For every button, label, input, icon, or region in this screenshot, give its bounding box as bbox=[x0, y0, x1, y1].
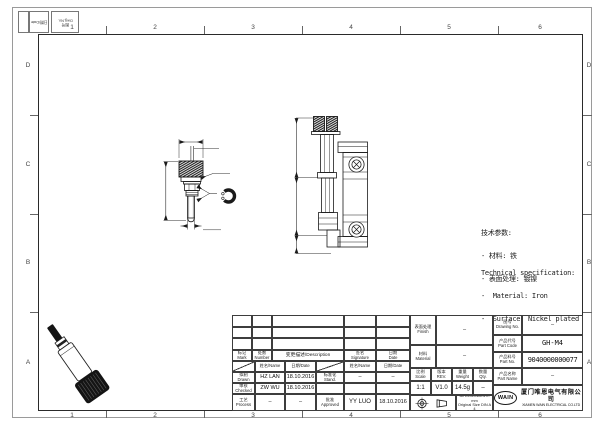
part-code-label: 产品代号 Part Code bbox=[493, 335, 522, 352]
revision-cell bbox=[252, 338, 272, 350]
part-code-value: GH-M4 bbox=[522, 335, 583, 352]
dim-30: 30 bbox=[287, 144, 295, 152]
company-cell: WAIN 厦门唯恩电气有限公司 XIAMEN WAIN ELECTRICAL C… bbox=[493, 385, 583, 411]
revision-cell bbox=[232, 327, 252, 338]
dim-41-7: 41.7 bbox=[155, 183, 163, 200]
revision-cell bbox=[376, 315, 410, 327]
dim-m4: M4 bbox=[205, 222, 214, 231]
part-no-value: 9040000000077 bbox=[522, 352, 583, 368]
finish-label: 表面处理 Finish bbox=[410, 315, 436, 345]
qty-label: 数量 Qty. bbox=[473, 368, 493, 381]
process-date: – bbox=[285, 394, 316, 411]
material-label: 材料 Material bbox=[410, 345, 436, 368]
approved-date: 18.10.2016 bbox=[376, 394, 410, 411]
drawing-no-label: 图号 Drawing No. bbox=[493, 315, 522, 335]
drawn-name: HZ LAN bbox=[255, 372, 285, 383]
company-name-en: XIAMEN WAIN ELECTRICAL CO.LTD bbox=[522, 403, 580, 407]
diagonal-cell bbox=[316, 361, 344, 372]
scale-label: 比例 Scale bbox=[410, 368, 431, 381]
empty-cell bbox=[344, 383, 376, 394]
subheader-name: 姓名/Name bbox=[255, 361, 285, 372]
drawing-sheet: 日期/Date 图号 Dwg.No. 1 2 3 4 5 6 1 2 3 4 5… bbox=[0, 0, 600, 424]
stand-date: – bbox=[376, 372, 410, 383]
material-value: – bbox=[436, 345, 493, 368]
revision-cell bbox=[232, 315, 252, 327]
weight-label: 重量 Weight bbox=[452, 368, 473, 381]
qty-value: – bbox=[473, 381, 493, 395]
company-name-cn: 厦门唯恩电气有限公司 bbox=[520, 389, 582, 403]
finish-value: – bbox=[436, 315, 493, 345]
stand-label: 标准化 Stand. bbox=[316, 372, 344, 383]
part-name-label: 产品名称 Part Name bbox=[493, 368, 522, 385]
approved-label: 批准 Approved bbox=[316, 394, 344, 411]
revision-header-signature: 签名 Signature bbox=[344, 350, 376, 361]
drawn-label: 拟制 Drawn bbox=[232, 372, 255, 383]
revision-cell bbox=[252, 315, 272, 327]
first-angle-projection-icon bbox=[413, 397, 453, 410]
rev-label: 版本 REV. bbox=[431, 368, 452, 381]
revision-cell bbox=[344, 327, 376, 338]
drawn-date: 18.10.2016 bbox=[285, 372, 316, 383]
checked-label: 审核 Checked bbox=[232, 383, 255, 394]
weight-value: 14.5g bbox=[452, 381, 473, 395]
dim-dia12: ø12 bbox=[184, 130, 197, 139]
projection-symbol-cell bbox=[410, 395, 456, 411]
dimensions-note: All Dimensions in mm Original Size DIN A… bbox=[456, 395, 493, 411]
empty-cell bbox=[376, 383, 410, 394]
part-name-value: – bbox=[522, 368, 583, 385]
revision-header-number: 处数 Number bbox=[252, 350, 272, 361]
side-view: 30 19.5 6.8 bbox=[287, 117, 368, 254]
drawing-no-value: – bbox=[522, 315, 583, 335]
checked-date: 18.10.2016 bbox=[285, 383, 316, 394]
scale-value: 1:1 bbox=[410, 381, 431, 395]
dim-6-8: 6.8 bbox=[287, 239, 295, 252]
revision-cell bbox=[376, 338, 410, 350]
revision-header-description: 变更描述/Description bbox=[272, 350, 344, 361]
revision-cell bbox=[232, 338, 252, 350]
diagonal-cell bbox=[232, 361, 255, 372]
c-ring-detail bbox=[223, 190, 235, 202]
approved-name: YY LUO bbox=[344, 394, 376, 411]
empty-cell bbox=[316, 383, 344, 394]
revision-cell bbox=[272, 315, 344, 327]
revision-cell bbox=[272, 327, 344, 338]
detail-view bbox=[198, 187, 235, 203]
dim-19-5: 19.5 bbox=[287, 198, 295, 215]
subheader-date2: 日期/Date bbox=[376, 361, 410, 372]
checked-name: ZW WU bbox=[255, 383, 285, 394]
subheader-date: 日期/Date bbox=[285, 361, 316, 372]
part-no-label: 产品料号 Part No. bbox=[493, 352, 522, 368]
process-name: – bbox=[255, 394, 285, 411]
revision-cell bbox=[272, 338, 344, 350]
stand-name: – bbox=[344, 372, 376, 383]
revision-cell bbox=[376, 327, 410, 338]
iso-view bbox=[38, 318, 110, 405]
revision-cell bbox=[344, 315, 376, 327]
title-block: 标记 Mark 处数 Number 变更描述/Description 签名 Si… bbox=[232, 315, 583, 411]
rev-value: V1.0 bbox=[431, 381, 452, 395]
revision-header-date: 日期 Date bbox=[376, 350, 410, 361]
process-label: 工艺 Process bbox=[232, 394, 255, 411]
revision-header-mark: 标记 Mark bbox=[232, 350, 252, 361]
revision-cell bbox=[252, 327, 272, 338]
dim-dia7: ø7 bbox=[214, 166, 222, 174]
revision-cell bbox=[344, 338, 376, 350]
subheader-name2: 姓名/Name bbox=[344, 361, 376, 372]
front-view: ø12 1.8 ø7 41.7 bbox=[155, 130, 231, 231]
wain-logo: WAIN bbox=[494, 391, 517, 405]
dim-1-8: 1.8 bbox=[202, 141, 214, 149]
